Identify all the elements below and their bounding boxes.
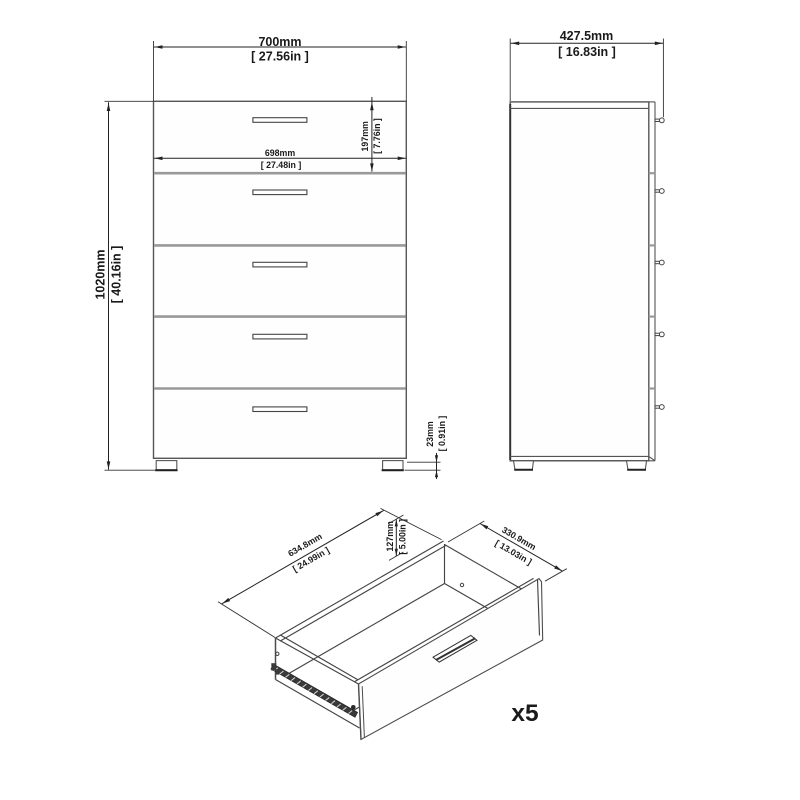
- svg-text:197mm: 197mm: [360, 121, 370, 151]
- svg-text:700mm: 700mm: [258, 35, 301, 49]
- svg-text:[ 27.56in ]: [ 27.56in ]: [251, 50, 309, 64]
- svg-text:[ 0.91in ]: [ 0.91in ]: [437, 416, 447, 452]
- svg-text:1020mm: 1020mm: [93, 249, 107, 299]
- svg-text:[ 7.76in ]: [ 7.76in ]: [372, 118, 382, 154]
- svg-text:698mm: 698mm: [265, 148, 295, 158]
- svg-text:[ 5.00in ]: [ 5.00in ]: [397, 519, 407, 555]
- svg-text:[ 40.16in ]: [ 40.16in ]: [110, 246, 124, 304]
- svg-text:[ 16.83in ]: [ 16.83in ]: [558, 45, 616, 59]
- svg-text:127mm: 127mm: [385, 521, 395, 551]
- svg-text:23mm: 23mm: [425, 421, 435, 447]
- svg-text:427.5mm: 427.5mm: [560, 29, 614, 43]
- svg-text:x5: x5: [511, 700, 538, 727]
- svg-text:[ 27.48in ]: [ 27.48in ]: [261, 160, 302, 170]
